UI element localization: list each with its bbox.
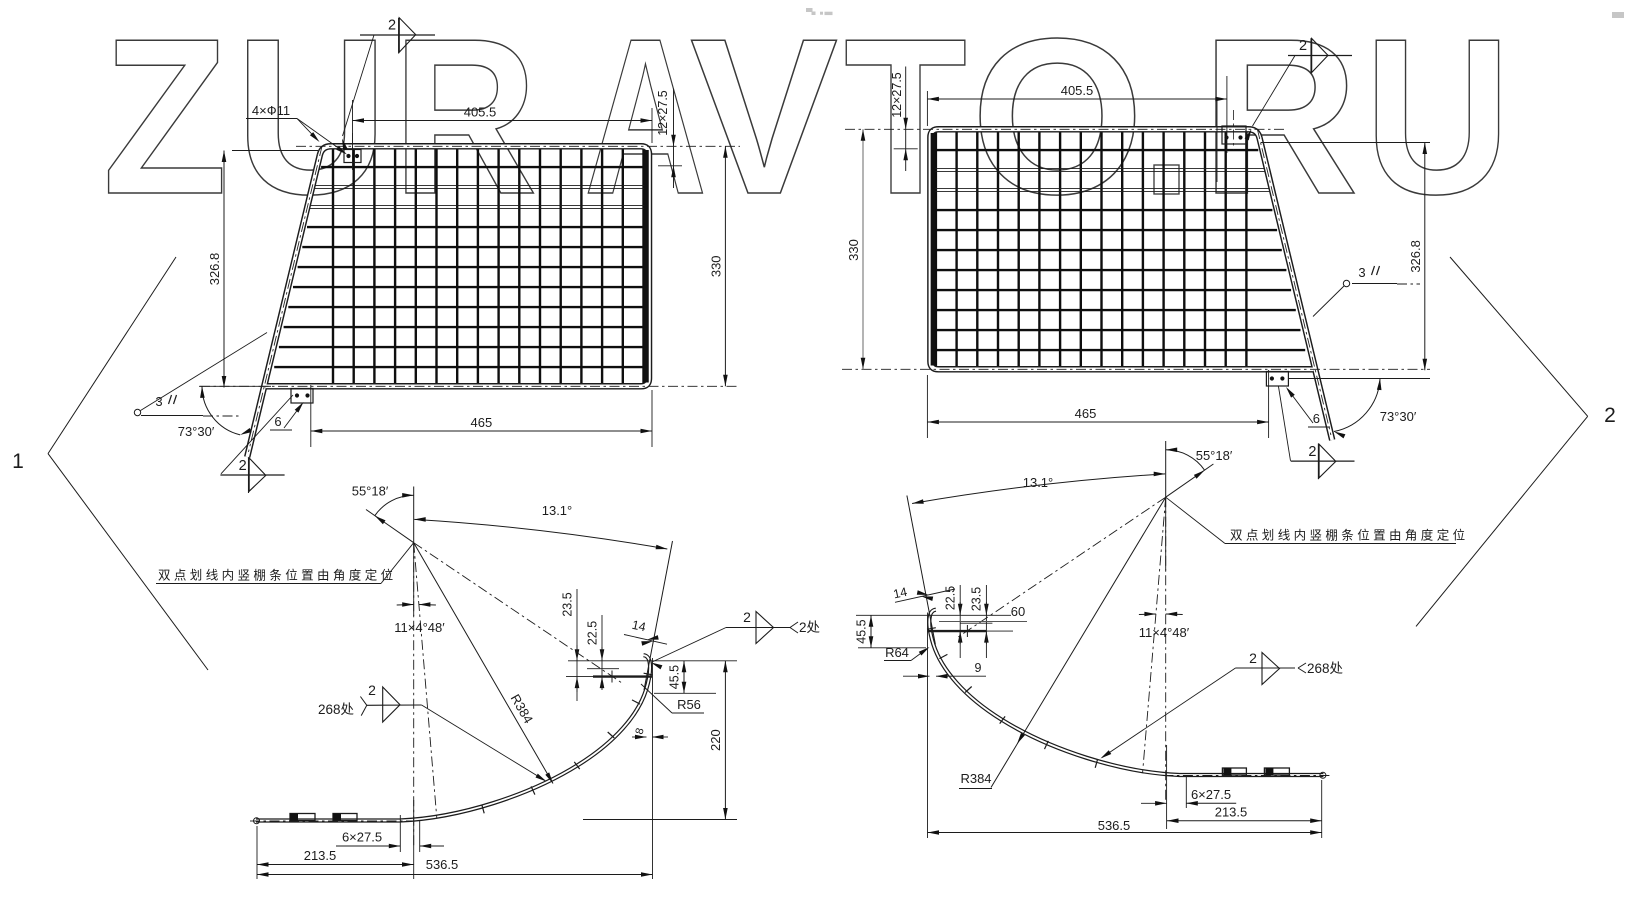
svg-text:220: 220: [708, 729, 723, 751]
svg-text:55°18′: 55°18′: [1196, 448, 1233, 463]
svg-text:4×Ф11: 4×Ф11: [252, 103, 290, 118]
svg-text:12×27.5: 12×27.5: [656, 90, 670, 136]
svg-text:R384: R384: [960, 771, 991, 786]
svg-text:2: 2: [1249, 650, 1257, 666]
svg-text:双点划线内竖棚条位置由角度定位: 双点划线内竖棚条位置由角度定位: [1230, 528, 1469, 543]
svg-text:268处: 268处: [1307, 661, 1344, 676]
svg-text:2: 2: [1299, 38, 1307, 54]
svg-text:V: V: [690, 0, 838, 241]
svg-text:9: 9: [975, 661, 982, 675]
svg-text:23.5: 23.5: [970, 587, 984, 611]
svg-text:1: 1: [12, 450, 24, 473]
svg-text:405.5: 405.5: [1061, 83, 1094, 98]
svg-text:45.5: 45.5: [667, 665, 681, 689]
svg-text:14: 14: [631, 618, 648, 635]
svg-text:11×4°48′: 11×4°48′: [1139, 625, 1190, 640]
svg-text:23.5: 23.5: [560, 592, 574, 616]
svg-text:6: 6: [274, 414, 281, 429]
svg-text:22.5: 22.5: [585, 621, 599, 645]
svg-text:536.5: 536.5: [426, 857, 459, 872]
svg-text:2: 2: [239, 458, 247, 474]
svg-text:6×27.5: 6×27.5: [342, 830, 382, 845]
svg-text:465: 465: [471, 415, 493, 430]
svg-text:55°18′: 55°18′: [352, 484, 389, 499]
svg-text:Z: Z: [103, 0, 228, 241]
svg-text:330: 330: [708, 255, 723, 277]
svg-text:213.5: 213.5: [304, 848, 337, 863]
svg-text:2: 2: [388, 18, 396, 34]
svg-text:45.5: 45.5: [854, 619, 868, 643]
svg-text:330: 330: [846, 239, 861, 261]
svg-text:60: 60: [1011, 604, 1025, 619]
svg-text:3: 3: [1358, 265, 1365, 280]
svg-text:11×4°48′: 11×4°48′: [394, 620, 445, 635]
svg-text:326.8: 326.8: [207, 253, 222, 286]
svg-text:536.5: 536.5: [1098, 818, 1131, 833]
svg-text:6: 6: [1313, 411, 1320, 426]
svg-text:2: 2: [743, 609, 751, 625]
svg-text:6×27.5: 6×27.5: [1191, 787, 1231, 802]
svg-text:2: 2: [368, 682, 376, 698]
svg-text:22.5: 22.5: [944, 586, 958, 610]
svg-text:3: 3: [155, 394, 162, 409]
svg-text:R64: R64: [885, 645, 909, 660]
svg-text:12×27.5: 12×27.5: [890, 72, 904, 118]
svg-text:13.1°: 13.1°: [1023, 475, 1054, 490]
svg-text:73°30′: 73°30′: [1380, 409, 1417, 424]
svg-text:73°30′: 73°30′: [178, 424, 215, 439]
svg-text:13.1°: 13.1°: [542, 503, 573, 518]
svg-text:U: U: [1364, 0, 1511, 241]
svg-text:2处: 2处: [799, 620, 821, 635]
svg-text:14: 14: [892, 585, 909, 602]
svg-text:405.5: 405.5: [464, 105, 497, 120]
svg-text:2: 2: [1604, 404, 1616, 427]
svg-text:465: 465: [1075, 406, 1097, 421]
svg-text:R56: R56: [677, 697, 701, 712]
svg-text:213.5: 213.5: [1215, 805, 1248, 820]
svg-text:268处: 268处: [318, 702, 355, 717]
svg-text:2: 2: [1308, 444, 1316, 460]
svg-text:双点划线内竖棚条位置由角度定位: 双点划线内竖棚条位置由角度定位: [158, 568, 397, 583]
svg-text:326.8: 326.8: [1408, 240, 1423, 273]
